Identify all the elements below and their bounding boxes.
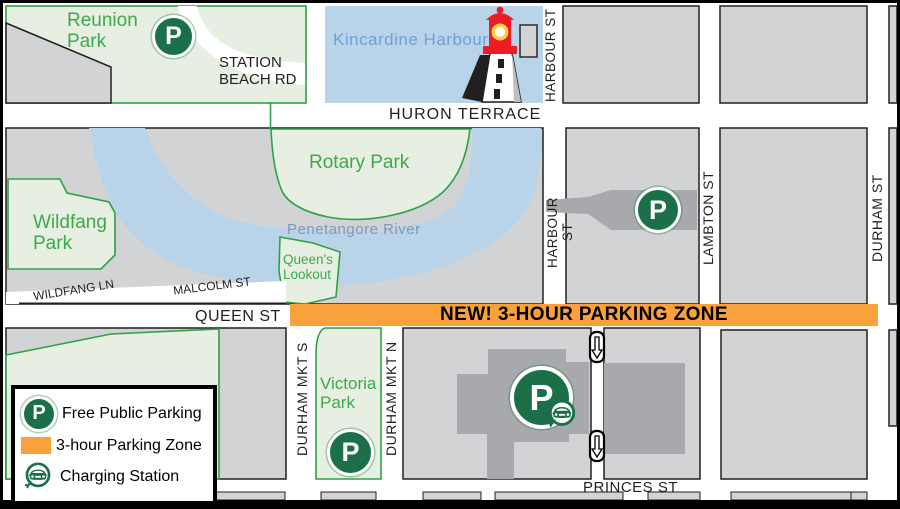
label-durham-mkt-s: DURHAM MKT S [295, 332, 313, 466]
one-way-arrow-icon [590, 332, 604, 362]
map-canvas: Reunion Park STATION BEACH RD Kincardine… [0, 0, 900, 509]
label-rotary-park: Rotary Park [309, 153, 409, 174]
label-queens-lookout: Queen's Lookout [283, 253, 345, 283]
legend: P Free Public Parking 3-hour Parking Zon… [11, 385, 217, 505]
legend-label: Charging Station [60, 468, 179, 486]
label-victoria-park: Victoria Park [320, 375, 386, 412]
label-durham-st: DURHAM ST [870, 169, 888, 267]
label-reunion-park: Reunion Park [67, 11, 159, 53]
label-princes-st: PRINCES ST [583, 480, 678, 497]
label-huron-terrace: HURON TERRACE [389, 106, 541, 124]
label-queen-st: QUEEN ST [195, 308, 281, 326]
parking-zone-banner: NEW! 3-HOUR PARKING ZONE [290, 304, 878, 326]
charging-station-icon [544, 397, 580, 433]
label-wildfang-park: Wildfang Park [33, 213, 125, 255]
label-lambton-st: LAMBTON ST [701, 165, 719, 271]
label-kincardine-harbour: Kincardine Harbour [333, 31, 488, 50]
label-harbour-st-mid: HARBOUR ST [546, 186, 564, 278]
parking-icon-reunion: P [152, 15, 195, 58]
parking-lot-east [604, 363, 685, 454]
legend-item-free-parking: P Free Public Parking [21, 396, 207, 432]
parking-icon: P [21, 396, 57, 432]
parking-icon-victoria: P [327, 429, 374, 476]
legend-item-3hour-zone: 3-hour Parking Zone [21, 437, 207, 455]
one-way-arrow-icon [590, 431, 604, 461]
label-harbour-st-top: HARBOUR ST [544, 8, 562, 102]
zone-swatch [21, 437, 51, 454]
parking-icon-north-lot: P [635, 187, 681, 233]
legend-item-charging: Charging Station [21, 460, 207, 494]
legend-label: Free Public Parking [62, 405, 202, 423]
label-station-beach-rd: STATION BEACH RD [219, 55, 331, 88]
charging-icon [21, 460, 55, 494]
legend-label: 3-hour Parking Zone [56, 437, 202, 455]
label-durham-mkt-n: DURHAM MKT N [384, 332, 402, 466]
label-penetangore-river: Penetangore River [287, 222, 421, 239]
